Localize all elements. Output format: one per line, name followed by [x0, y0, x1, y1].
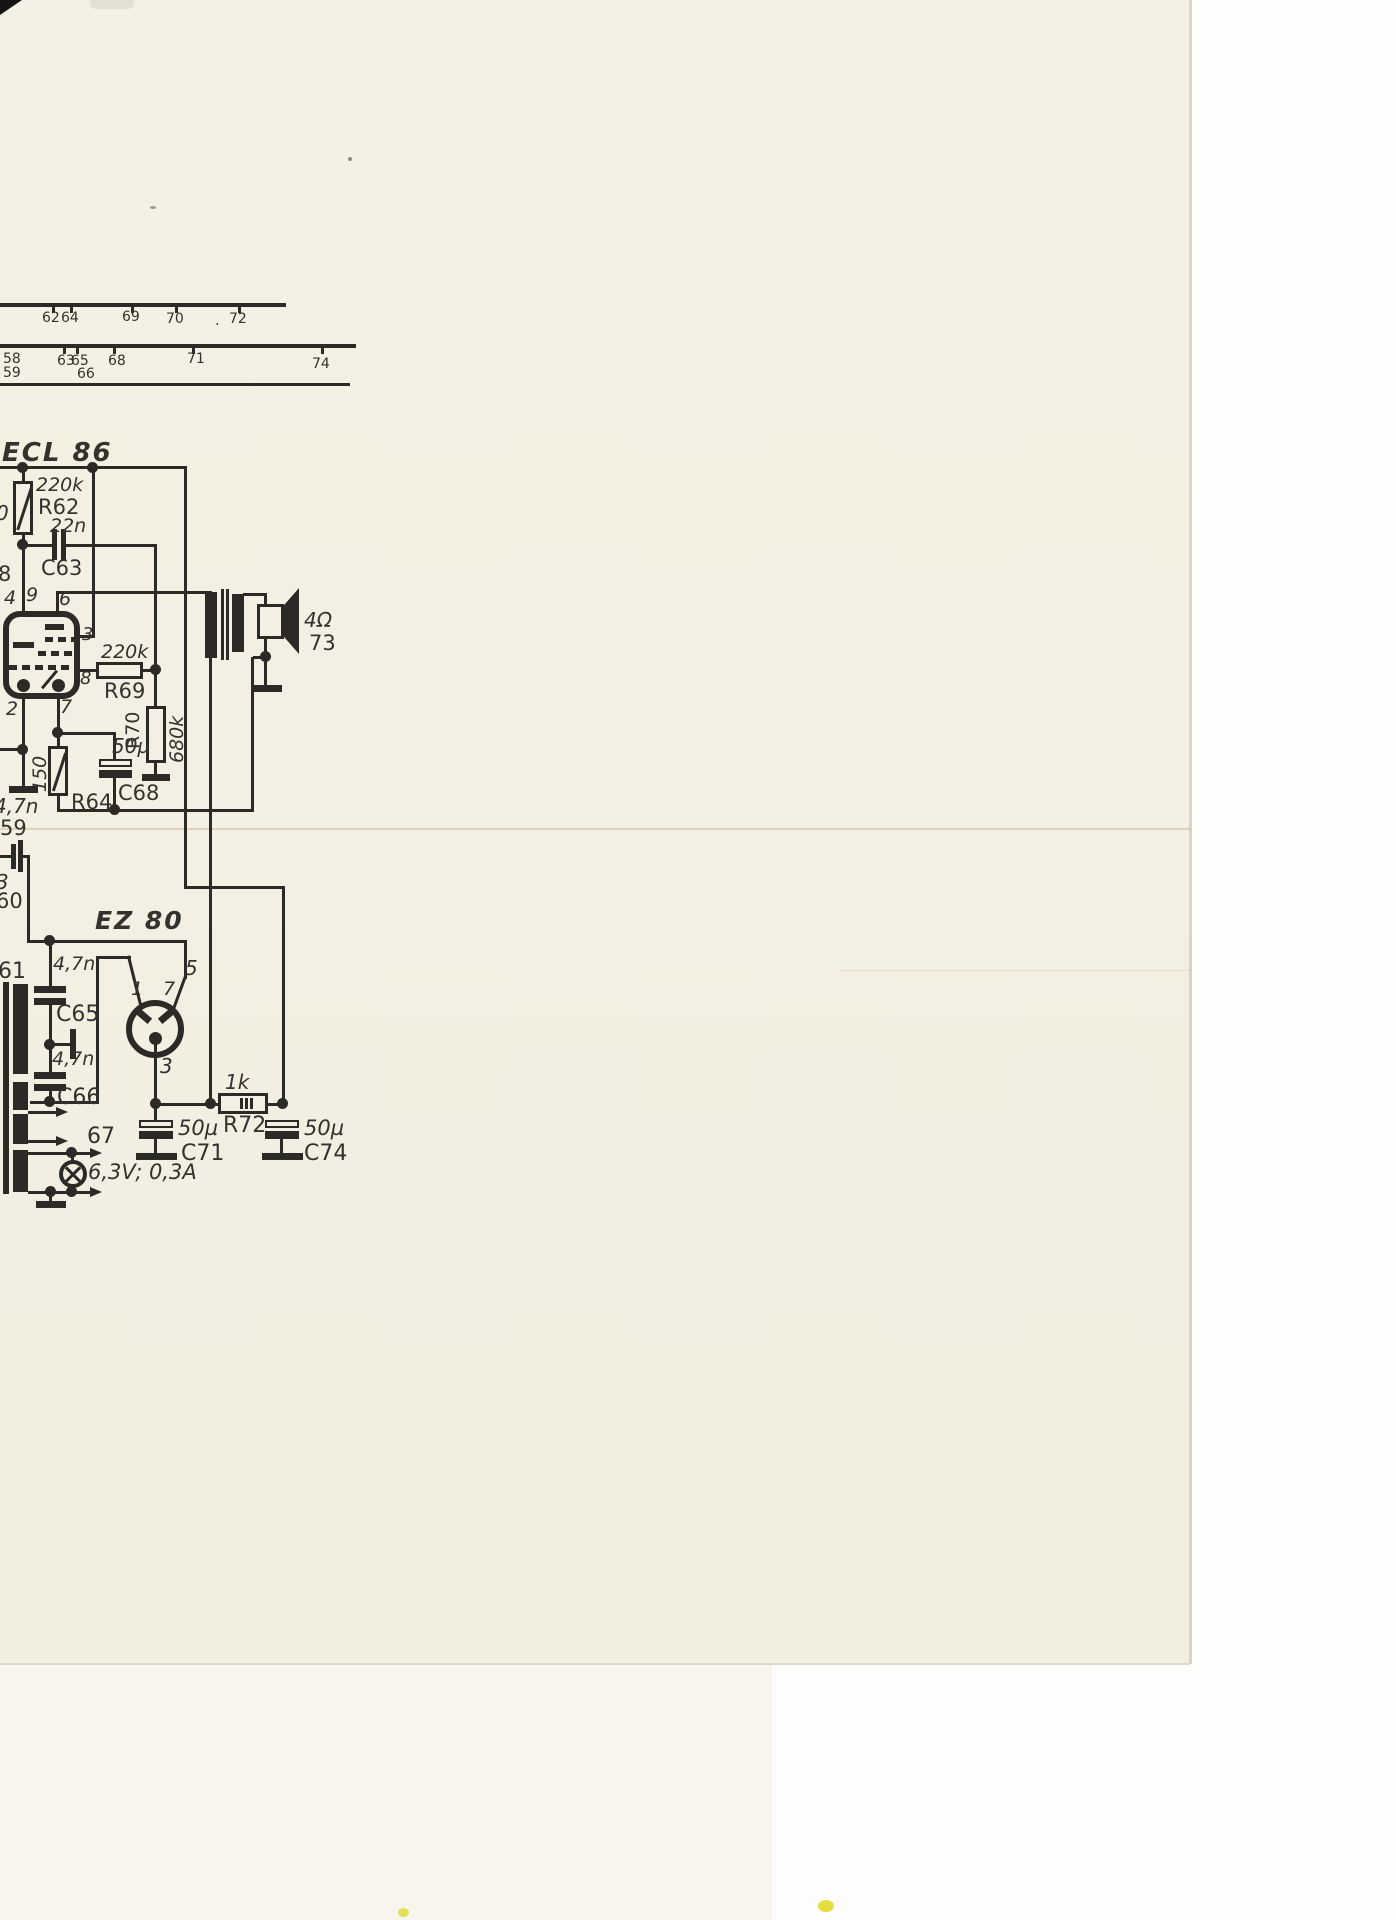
- junction-dot: [109, 804, 120, 815]
- wire: [50, 1043, 71, 1046]
- wire: [27, 855, 30, 943]
- c59-value: 4,7n: [0, 796, 38, 817]
- wire: [96, 956, 99, 1104]
- wire: [57, 732, 116, 735]
- wire-bplus-jog: [184, 886, 285, 889]
- c74-value: 50µ: [304, 1117, 344, 1139]
- wire-primary-return: [209, 658, 212, 1107]
- r62-value: 220k: [36, 476, 83, 496]
- pin-number: 2: [6, 700, 18, 720]
- tube-type-label: EZ 80: [95, 908, 184, 934]
- paper-sheet: [0, 0, 1190, 1664]
- capacitor-c68-plate: [99, 759, 132, 767]
- r72-value: 1k: [225, 1072, 249, 1093]
- pin-number: 9: [26, 586, 38, 606]
- wire: [25, 544, 53, 547]
- wire: [154, 544, 157, 674]
- wire: [264, 658, 267, 685]
- dial-tick: [321, 345, 324, 354]
- r69-value: 220k: [101, 643, 148, 663]
- ground-symbol: [262, 1153, 303, 1160]
- capacitor-c65-plate: [34, 986, 66, 993]
- c68-value: 50µ: [112, 736, 150, 757]
- transformer-primary-winding: [205, 592, 217, 658]
- tube-cathode: [17, 679, 30, 692]
- capacitor-c74-plate: [265, 1120, 299, 1128]
- tube-grid: [38, 651, 75, 656]
- transformer-core: [3, 982, 9, 1194]
- paper-notch: [90, 0, 134, 9]
- cutoff-text: 0: [0, 503, 9, 524]
- lamp-ref: 67: [87, 1125, 115, 1148]
- dial-dot: .: [215, 314, 219, 329]
- wire-bplus-to-filter: [282, 886, 285, 1107]
- yellow-speck: [818, 1900, 834, 1912]
- transformer-winding: [13, 1082, 28, 1110]
- lamp-icon: [59, 1160, 87, 1188]
- c59-ref: 59: [0, 817, 27, 839]
- transformer-core: [226, 589, 229, 660]
- tube-grid: [45, 637, 76, 642]
- r70-value: 680k: [168, 716, 188, 763]
- wire: [66, 544, 157, 547]
- dial-number: 59: [3, 366, 21, 381]
- dial-number: 69: [122, 310, 140, 325]
- resistor-r64: [48, 746, 68, 796]
- wire: [154, 1043, 157, 1106]
- wire: [79, 669, 97, 672]
- fold-crease-right: [840, 970, 1190, 971]
- wire: [92, 468, 95, 638]
- wire: [96, 956, 131, 959]
- pin-number: 5: [185, 958, 198, 979]
- cutoff-text: 60: [0, 890, 23, 912]
- transformer-winding: [13, 984, 28, 1074]
- c74-ref: C74: [304, 1142, 347, 1165]
- speaker-impedance: 4Ω: [304, 610, 332, 631]
- tap-wire: [28, 1191, 92, 1194]
- dial-number: 64: [61, 311, 79, 326]
- resistor-hatch: [245, 1098, 248, 1109]
- c63-value: 22n: [50, 517, 86, 537]
- c63-ref: C63: [41, 557, 82, 579]
- dial-line-2: [0, 344, 356, 348]
- fold-crease: [0, 828, 1190, 830]
- tap-wire: [28, 1140, 58, 1143]
- speaker-body: [257, 604, 284, 639]
- resistor-hatch: [250, 1098, 253, 1109]
- wire: [57, 698, 60, 748]
- wire: [154, 672, 157, 708]
- capacitor-c68-plate: [99, 770, 132, 778]
- dial-number: 68: [108, 354, 126, 369]
- c71-value: 50µ: [178, 1117, 218, 1139]
- c66-value: 4,7n: [52, 1050, 94, 1070]
- pin-number: 3: [160, 1056, 173, 1077]
- ground-symbol: [9, 786, 38, 793]
- ground-symbol: [251, 685, 282, 692]
- wire: [0, 855, 11, 858]
- r69-ref: R69: [104, 680, 145, 702]
- tube-cathode: [52, 679, 65, 692]
- transformer-secondary-winding: [232, 594, 244, 652]
- wire: [154, 1139, 157, 1154]
- arrow-icon: [56, 1136, 68, 1146]
- wire: [0, 748, 23, 751]
- resistor-r62: [13, 481, 33, 535]
- lamp-rating: 6,3V; 0,3A: [88, 1161, 197, 1183]
- wire: [22, 698, 25, 787]
- wire-bplus-down: [184, 466, 187, 889]
- scan-speck: [150, 206, 156, 209]
- resistor-slash: [52, 753, 67, 792]
- capacitor-c71-plate: [139, 1131, 173, 1139]
- cutoff-text: 61: [0, 960, 26, 983]
- capacitor-c60-plate: [11, 844, 16, 869]
- pin-number: 6: [59, 590, 71, 610]
- dial-number: 62: [42, 311, 60, 326]
- tube-electrode: [13, 642, 34, 648]
- wire: [280, 1139, 283, 1154]
- wire: [49, 943, 52, 988]
- tube-electrode: [45, 624, 64, 630]
- junction-dot: [205, 1098, 216, 1109]
- junction-dot: [277, 1098, 288, 1109]
- tap-wire: [28, 1152, 92, 1155]
- transformer-winding: [13, 1114, 28, 1144]
- yellow-speck: [398, 1908, 409, 1917]
- ground-symbol: [36, 1201, 66, 1208]
- c65-value: 4,7n: [53, 955, 95, 975]
- r72-ref: R72: [223, 1114, 266, 1137]
- tap-wire: [28, 1111, 58, 1114]
- capacitor-c74-plate: [265, 1131, 299, 1139]
- pin-number: 8: [80, 670, 91, 689]
- arrow-icon: [90, 1148, 102, 1158]
- ground-symbol: [136, 1153, 177, 1160]
- resistor-slash: [16, 488, 32, 531]
- scan-speck: [348, 157, 352, 161]
- cutoff-text: 8: [0, 563, 11, 585]
- capacitor-c66-plate: [34, 1072, 66, 1079]
- wire: [49, 1091, 52, 1104]
- pin-number: 3: [82, 626, 93, 645]
- pin-number: 1: [131, 980, 143, 1000]
- dial-number: 66: [77, 367, 95, 382]
- speaker-ref: 73: [309, 632, 336, 654]
- wire: [71, 1186, 74, 1194]
- transformer-core: [221, 589, 224, 660]
- capacitor-c71-plate: [139, 1120, 173, 1128]
- dial-number: 70: [166, 312, 184, 327]
- c65-ref: C65: [56, 1003, 99, 1026]
- arrow-icon: [90, 1187, 102, 1197]
- wire: [251, 657, 254, 812]
- wire: [56, 591, 212, 594]
- resistor-hatch: [240, 1098, 243, 1109]
- pin-number: 4: [4, 589, 16, 609]
- paper-lower-sheet: [0, 1665, 772, 1920]
- tube-grid: [9, 665, 76, 670]
- resistor-r72: [218, 1093, 268, 1114]
- pin-number: 7: [163, 980, 175, 1000]
- arrow-icon: [56, 1107, 68, 1117]
- c66-ref: C66: [57, 1086, 100, 1109]
- wire-ground-bus: [57, 809, 254, 812]
- scanned-schematic-page: 62 64 69 70 72 . 58 59 63 65 66 68 71 74…: [0, 0, 1396, 1920]
- dial-line-1: [0, 303, 286, 307]
- resistor-r69: [96, 662, 143, 679]
- transformer-winding: [13, 1150, 28, 1192]
- c68-ref: C68: [118, 782, 159, 804]
- dial-number: 72: [229, 312, 247, 327]
- dial-line-3: [0, 383, 350, 386]
- dial-number: 74: [312, 357, 330, 372]
- pin-number: 7: [60, 698, 72, 718]
- dial-number: 71: [187, 352, 205, 367]
- ground-symbol: [142, 774, 170, 781]
- paper-right-edge: [1189, 0, 1192, 1664]
